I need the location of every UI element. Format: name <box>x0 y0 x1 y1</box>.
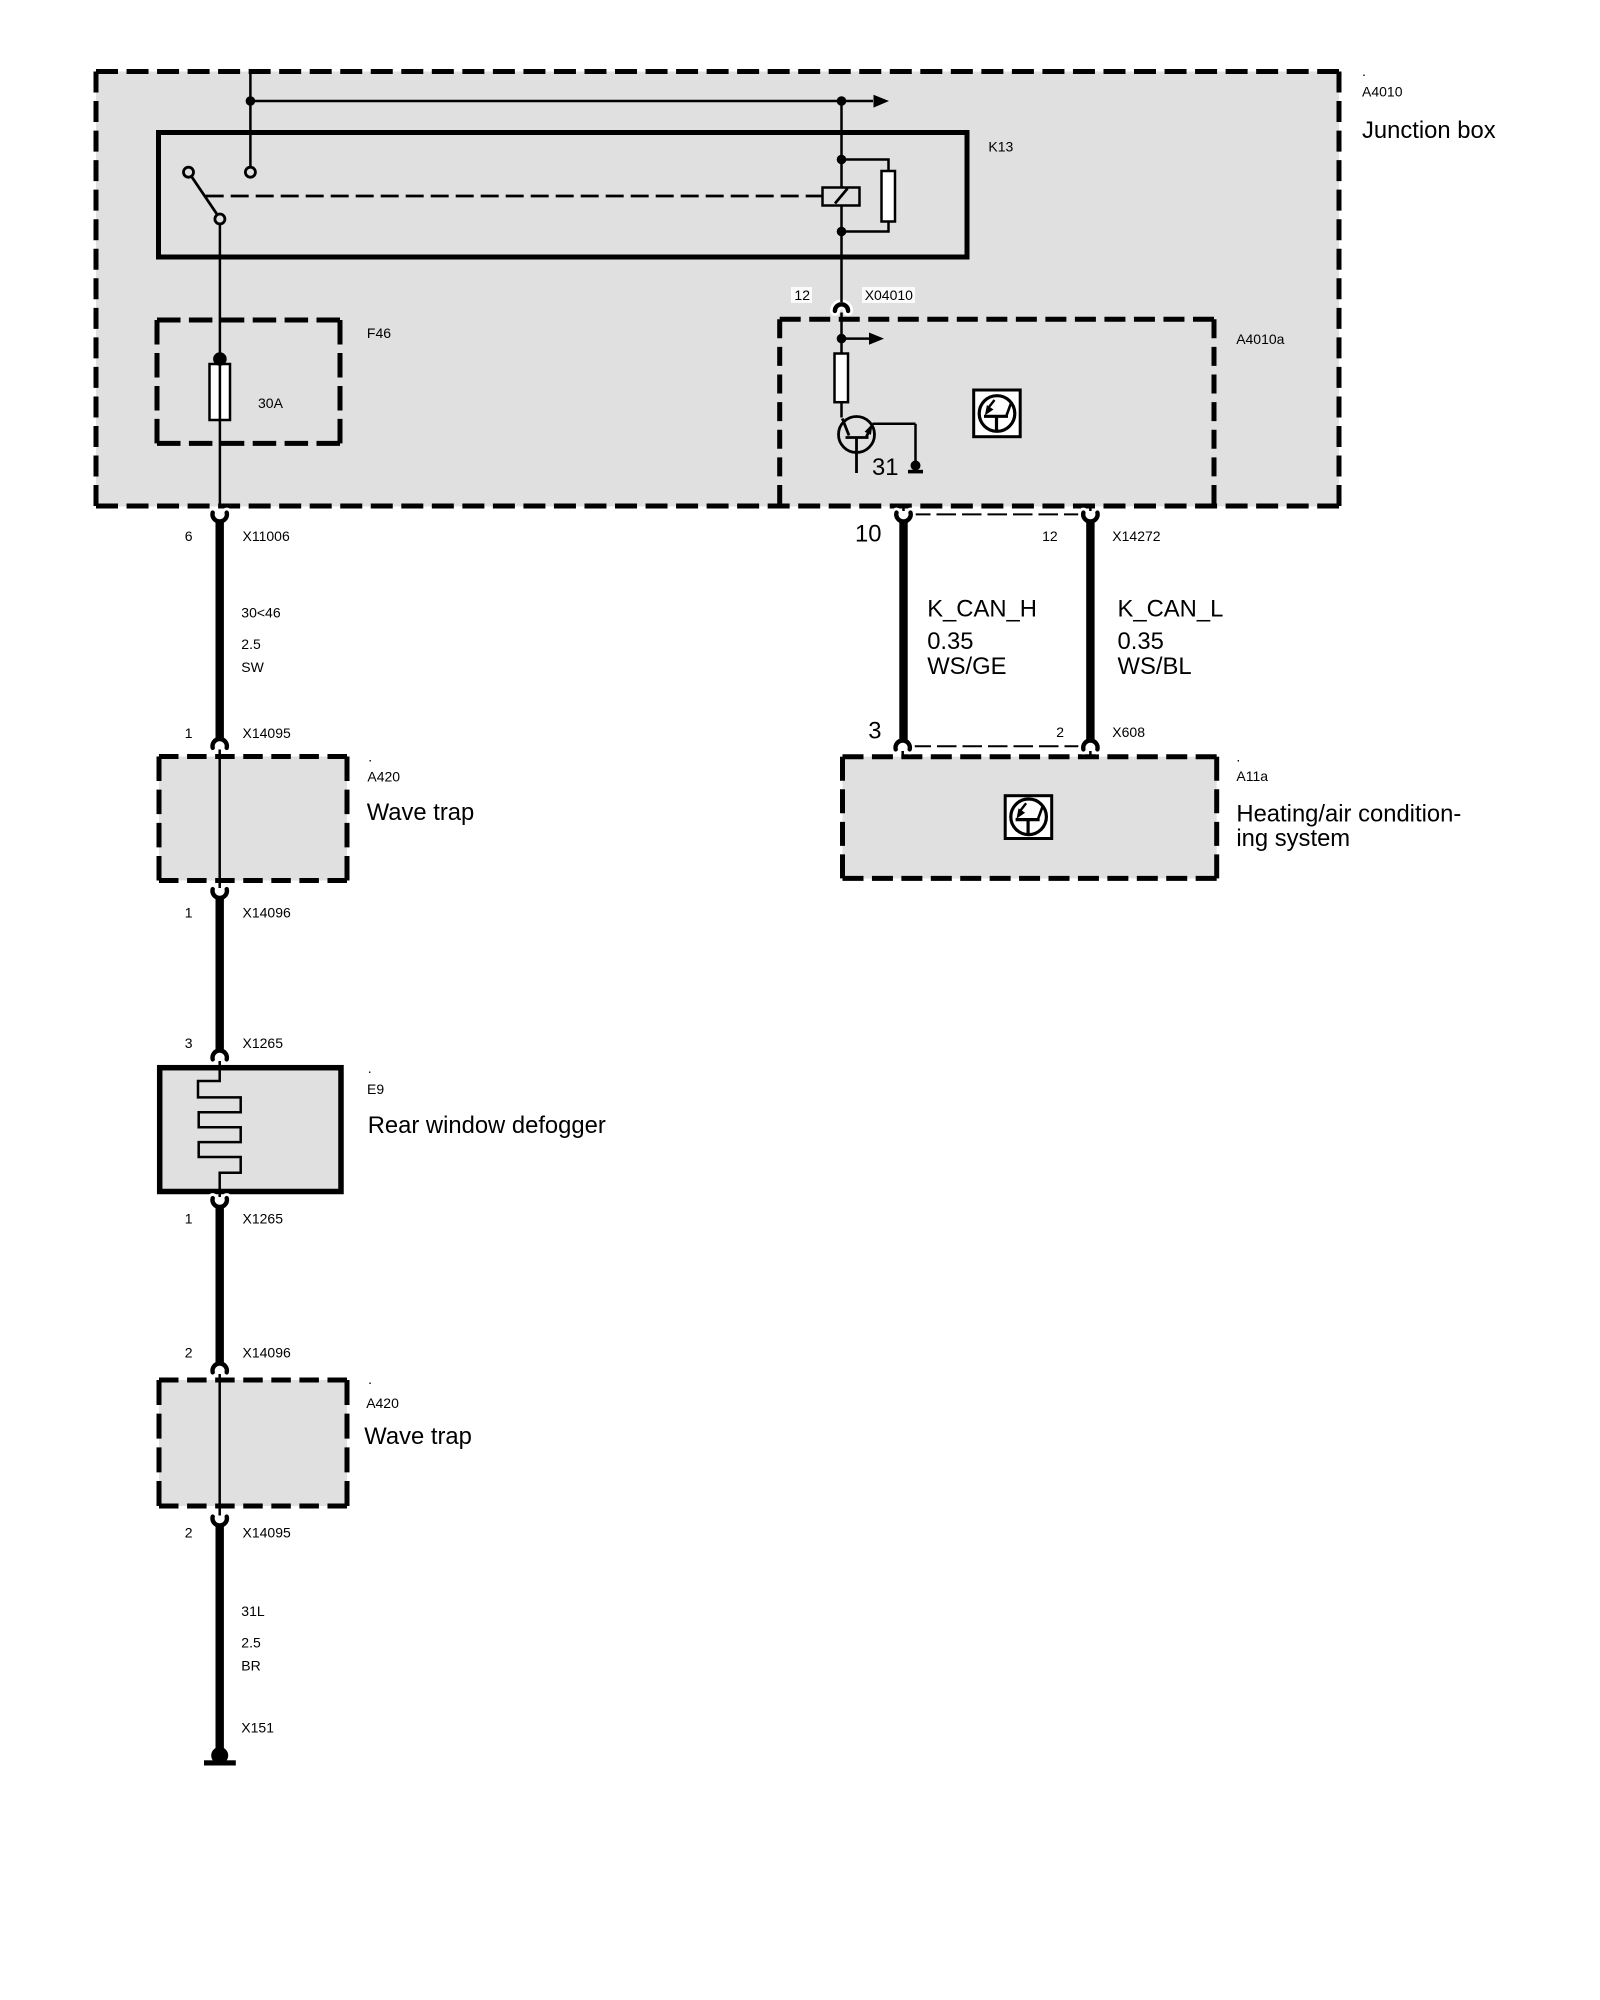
svg-text:1: 1 <box>185 725 193 741</box>
svg-text:A4010: A4010 <box>1362 84 1403 100</box>
svg-text:X11006: X11006 <box>243 528 290 544</box>
svg-text:31L: 31L <box>241 1603 265 1619</box>
svg-text:10: 10 <box>855 520 881 547</box>
svg-text:X14095: X14095 <box>243 1525 291 1541</box>
svg-text:K_CAN_H: K_CAN_H <box>927 596 1037 623</box>
svg-text:X14095: X14095 <box>243 725 291 741</box>
svg-text:3: 3 <box>185 1035 193 1051</box>
svg-text:6: 6 <box>185 528 193 544</box>
svg-text:A420: A420 <box>367 769 400 785</box>
svg-text:30<46: 30<46 <box>241 604 281 620</box>
svg-text:12: 12 <box>1042 528 1058 544</box>
svg-text:X04010: X04010 <box>865 287 913 303</box>
svg-text:2: 2 <box>185 1345 193 1361</box>
svg-text:K13: K13 <box>988 138 1013 154</box>
svg-text:1: 1 <box>185 904 193 920</box>
svg-text:12: 12 <box>794 287 810 303</box>
svg-text:X151: X151 <box>241 1720 274 1736</box>
svg-text:WS/BL: WS/BL <box>1118 653 1192 680</box>
svg-text:Wave trap: Wave trap <box>364 1423 472 1450</box>
svg-text:WS/GE: WS/GE <box>927 653 1006 680</box>
svg-text:X608: X608 <box>1112 724 1145 740</box>
svg-text:X14096: X14096 <box>243 1345 291 1361</box>
svg-text:3: 3 <box>868 717 881 744</box>
svg-text:Heating/air condition-: Heating/air condition- <box>1236 800 1461 827</box>
svg-text:ing system: ing system <box>1236 825 1350 852</box>
svg-text:E9: E9 <box>367 1081 384 1097</box>
svg-text:A420: A420 <box>366 1395 399 1411</box>
svg-text:.: . <box>1236 749 1240 765</box>
svg-text:Junction box: Junction box <box>1362 117 1496 144</box>
svg-text:.: . <box>368 1060 372 1076</box>
svg-text:BR: BR <box>241 1658 260 1674</box>
svg-text:X1265: X1265 <box>243 1211 284 1227</box>
svg-text:A4010a: A4010a <box>1236 331 1284 347</box>
svg-text:X1265: X1265 <box>243 1035 284 1051</box>
svg-text:A11a: A11a <box>1236 768 1268 784</box>
svg-text:Rear window defogger: Rear window defogger <box>368 1112 606 1139</box>
svg-text:Wave trap: Wave trap <box>367 799 475 826</box>
svg-text:31: 31 <box>872 454 898 481</box>
svg-text:F46: F46 <box>367 325 391 341</box>
svg-text:K_CAN_L: K_CAN_L <box>1118 596 1224 623</box>
svg-text:SW: SW <box>241 659 264 675</box>
svg-text:1: 1 <box>185 1211 193 1227</box>
svg-text:2: 2 <box>185 1525 193 1541</box>
svg-text:2: 2 <box>1056 724 1064 740</box>
svg-text:0.35: 0.35 <box>927 628 973 655</box>
svg-text:X14272: X14272 <box>1112 528 1160 544</box>
svg-text:30A: 30A <box>258 395 284 411</box>
svg-text:X14096: X14096 <box>243 904 291 920</box>
svg-text:2.5: 2.5 <box>241 636 261 652</box>
svg-text:.: . <box>1362 63 1366 79</box>
svg-text:0.35: 0.35 <box>1118 628 1164 655</box>
svg-text:2.5: 2.5 <box>241 1634 261 1650</box>
svg-text:.: . <box>368 749 372 765</box>
svg-text:.: . <box>368 1371 372 1387</box>
